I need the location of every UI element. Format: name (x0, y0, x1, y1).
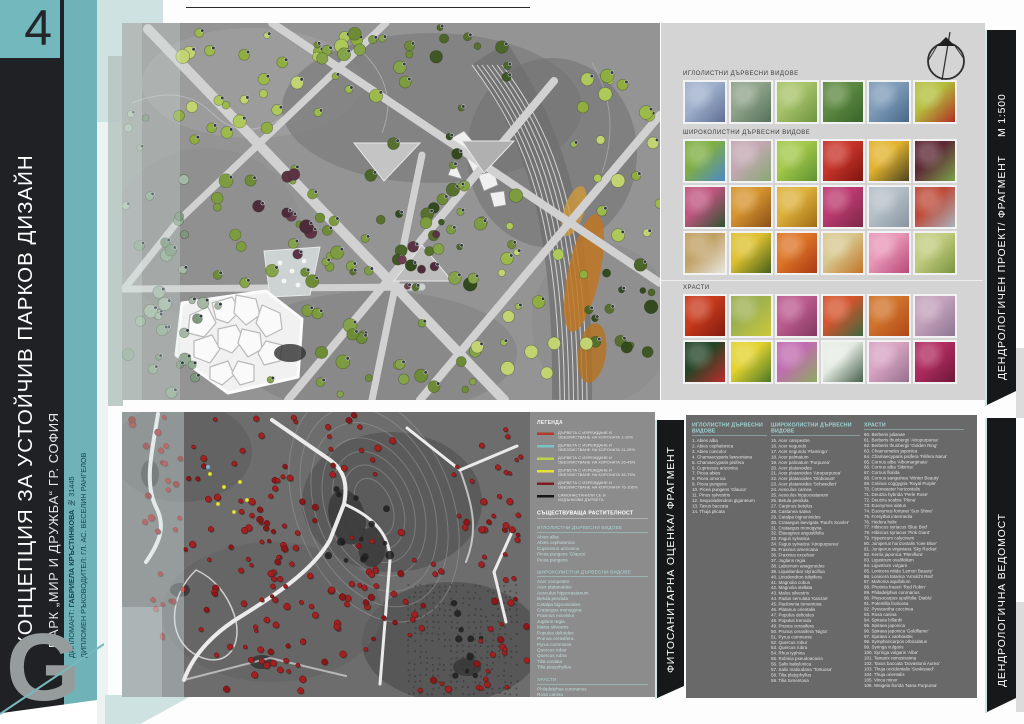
credit-line-1: ДИПЛОМАНТ: ГАБРИЕЛА КРЪСТИНКОВА № 31445 (66, 66, 78, 658)
band-dendrology-list: ДЕНДРОЛОГИЧНА ВЕДОМОСТ (985, 418, 1016, 713)
photo-section-title: ШИРОКОЛИСТНИ ДЪРВЕСНИ ВИДОВЕ (683, 130, 973, 136)
legend-item: ДЪРВЕТА С ИЗРЕЖДАНЕ ИОБЕЗЛИСТВАНЕ НА КОР… (537, 456, 648, 465)
photo-section-title: ХРАСТИ (683, 285, 973, 291)
legend-items: ДЪРВЕТА С ИЗРЕЖДАНЕ ИОБЕЗЛИСТВАНЕ НА КОР… (537, 431, 648, 503)
legend-label: ДЪРВЕТА С ИЗРЕЖДАНЕ ИОБЕЗЛИСТВАНЕ НА КОР… (558, 443, 635, 452)
plant-photo-thumbnail (729, 294, 773, 338)
decor-number-divider (60, 0, 64, 58)
dark-sculpture (274, 344, 306, 362)
credits: ДИПЛОМАНТ: ГАБРИЕЛА КРЪСТИНКОВА № 31445 … (66, 66, 94, 658)
sheet-number: 4 (0, 0, 60, 56)
band-label: ДЕНДРОЛОГИЧЕН ПРОЕКТ/ ФРАГМЕНТ (996, 155, 1008, 380)
species-column: ИГЛОЛИСТНИ ДЪРВЕСНИ ВИДОВЕ1. Abies alba2… (692, 422, 767, 688)
band-scale: М 1:500 (996, 94, 1008, 138)
species-column: ШИРОКОЛИСТНИ ДЪРВЕСНИ ВИДОВЕ15. Acer cam… (771, 422, 860, 688)
sheet-number-box: 4 (0, 0, 60, 58)
plant-photo-thumbnail (867, 231, 911, 275)
photo-section-title: ИГЛОЛИСТНИ ДЪРВЕСНИ ВИДОВЕ (683, 71, 973, 77)
plant-photo-thumbnail (821, 294, 865, 338)
decor-top-rule (186, 7, 530, 8)
plant-photo-thumbnail (821, 80, 865, 124)
plant-photo-thumbnail (913, 185, 957, 229)
band-dendrology-project: ДЕНДРОЛОГИЧЕН ПРОЕКТ/ ФРАГМЕНТМ 1:500 (985, 30, 1016, 406)
legend-label: ДЪРВЕТА С ИЗРЕЖДАНЕ ИОБЕЗЛИСТВАНЕ НА КОР… (558, 468, 635, 477)
legend-item: САМОНАСТАНИЛИ СЕ ИИЗДЪНКОВИ ДЪРВЕТА (537, 493, 648, 502)
species-item: 30. Crataegus laevigata 'Paul's Scarlet' (771, 520, 860, 525)
plant-photo-thumbnail (683, 294, 727, 338)
decor-teal-wedge (105, 695, 193, 724)
legend-swatch (537, 433, 554, 436)
plant-photo-thumbnail (913, 80, 957, 124)
decor-edge-tab (1016, 348, 1024, 418)
legend-swatch (537, 483, 554, 486)
poster-subtitle: ПАРК „МИР И ДРУЖБА“ ГР. СОФИЯ (46, 56, 64, 648)
species-list-panel: ИГЛОЛИСТНИ ДЪРВЕСНИ ВИДОВЕ1. Abies alba2… (686, 415, 977, 698)
plant-photo-thumbnail (683, 340, 727, 384)
plant-photo-thumbnail (683, 185, 727, 229)
plant-photo-thumbnail (821, 231, 865, 275)
plant-photo-thumbnail (821, 185, 865, 229)
vegetation-group-title: ХРАСТИ (537, 677, 648, 685)
plant-photo-thumbnail (775, 340, 819, 384)
plant-photo-thumbnail (729, 139, 773, 183)
studio-logo: G (0, 618, 104, 724)
vegetation-item: Tilia platyphyllus (537, 665, 648, 671)
plant-photo-thumbnail (729, 231, 773, 275)
plant-photo-thumbnail (913, 231, 957, 275)
legend-item: ДЪРВЕТА С ИЗРЕЖДАНЕ ИОБЕЗЛИСТВАНЕ НА КОР… (537, 481, 648, 490)
species-column-title: ХРАСТИ (864, 422, 964, 430)
phytosanitary-map (122, 412, 530, 697)
plant-photo-thumbnail (775, 294, 819, 338)
credit-line-2: ДИПЛОМЕН РЪКОВОДИТЕЛ: ГЛ. АС. ВЕСЕЛИН РА… (78, 66, 90, 658)
decor-sage-strip (108, 56, 123, 406)
decor-edge-tab (1016, 602, 1024, 712)
species-columns: ИГЛОЛИСТНИ ДЪРВЕСНИ ВИДОВЕ1. Abies alba2… (686, 415, 973, 695)
legend-swatch (537, 458, 554, 461)
band-label: ДЕНДРОЛОГИЧНА ВЕДОМОСТ (996, 418, 1008, 713)
plant-photo-thumbnail (867, 80, 911, 124)
legend-title: ЛЕГЕНДА (537, 420, 648, 426)
photo-grid (683, 139, 965, 277)
legend-item: ДЪРВЕТА С ИЗРЕЖДАНЕ ИОБЕЗЛИСТВАНЕ НА КОР… (537, 443, 648, 452)
plant-photo-panel: ИГЛОЛИСТНИ ДЪРВЕСНИ ВИДОВЕШИРОКОЛИСТНИ Д… (660, 23, 985, 400)
existing-vegetation-groups: ИГЛОЛИСТНИ ДЪРВЕСНИ ВИДОВЕAbies albaAbie… (537, 525, 648, 697)
plant-photo-thumbnail (729, 340, 773, 384)
plant-photo-thumbnail (729, 80, 773, 124)
legend-panel: ЛЕГЕНДА ДЪРВЕТА С ИЗРЕЖДАНЕ ИОБЕЗЛИСТВАН… (530, 412, 655, 697)
species-column-title: ШИРОКОЛИСТНИ ДЪРВЕСНИ ВИДОВЕ (771, 422, 860, 436)
band-phytosanitary: ФИТОСАНИТАРНА ОЦЕНКА/ ФРАГМЕНТ (655, 420, 684, 699)
plant-photo-thumbnail (867, 294, 911, 338)
legend-label: САМОНАСТАНИЛИ СЕ ИИЗДЪНКОВИ ДЪРВЕТА (558, 493, 606, 502)
species-item: 14. Thuja plicata (692, 509, 767, 514)
legend-swatch (537, 495, 554, 498)
vegetation-group-title: ШИРОКОЛИСТНИ ДЪРВЕСНИ ВИДОВЕ (537, 570, 648, 578)
vegetation-item: Picea pungens (537, 557, 648, 563)
plant-photo-thumbnail (821, 340, 865, 384)
plant-photo-thumbnail (867, 340, 911, 384)
vegetation-item: Rosa canina (537, 692, 648, 697)
legend-item: ДЪРВЕТА С ИЗРЕЖДАНЕ ИОБЕЗЛИСТВАНЕ НА КОР… (537, 431, 648, 440)
species-item: 106. Weigela florida 'Nana Purpurea' (864, 683, 964, 688)
section-divider (661, 280, 983, 281)
legend-item: ДЪРВЕТА С ИЗРЕЖДАНЕ ИОБЕЗЛИСТВАНЕ НА КОР… (537, 468, 648, 477)
species-column: ХРАСТИ60. Berberis julianae61. Berberis … (864, 422, 964, 688)
poster: 4 КОНЦЕПЦИЯ ЗА УСТОЙЧИВ ПАРКОВ ДИЗАЙН ПА… (0, 0, 1024, 724)
plant-photo-thumbnail (775, 231, 819, 275)
species-item: 59. Tilia tomentosa (771, 678, 860, 683)
photo-grid (683, 80, 965, 126)
vegetation-group-title: ИГЛОЛИСТНИ ДЪРВЕСНИ ВИДОВЕ (537, 525, 648, 533)
legend-swatch (537, 445, 554, 448)
existing-vegetation-title: СЪЩЕСТВУВАЩА РАСТИТЕЛНОСТ (537, 510, 648, 519)
plant-photo-thumbnail (775, 80, 819, 124)
dendrology-plan-map (122, 23, 660, 400)
poster-title: КОНЦЕПЦИЯ ЗА УСТОЙЧИВ ПАРКОВ ДИЗАЙН (14, 56, 44, 648)
legend-swatch (537, 470, 554, 473)
plant-photo-thumbnail (913, 340, 957, 384)
legend-label: ДЪРВЕТА С ИЗРЕЖДАНЕ ИОБЕЗЛИСТВАНЕ НА КОР… (558, 456, 635, 465)
photo-sections: ИГЛОЛИСТНИ ДЪРВЕСНИ ВИДОВЕШИРОКОЛИСТНИ Д… (683, 67, 973, 386)
legend-label: ДЪРВЕТА С ИЗРЕЖДАНЕ ИОБЕЗЛИСТВАНЕ НА КОР… (558, 431, 633, 440)
plant-photo-thumbnail (729, 185, 773, 229)
logo-diagonal-line (0, 618, 104, 724)
plant-photo-thumbnail (867, 139, 911, 183)
plant-photo-thumbnail (683, 80, 727, 124)
plant-photo-thumbnail (913, 139, 957, 183)
plant-photo-thumbnail (775, 185, 819, 229)
plant-photo-thumbnail (913, 294, 957, 338)
plant-photo-thumbnail (775, 139, 819, 183)
legend-label: ДЪРВЕТА С ИЗРЕЖДАНЕ ИОБЕЗЛИСТВАНЕ НА КОР… (558, 481, 638, 490)
plant-photo-thumbnail (821, 139, 865, 183)
plant-photo-thumbnail (683, 231, 727, 275)
band-label: ФИТОСАНИТАРНА ОЦЕНКА/ ФРАГМЕНТ (665, 420, 677, 699)
plant-photo-thumbnail (867, 185, 911, 229)
photo-grid (683, 294, 965, 386)
plant-photo-thumbnail (683, 139, 727, 183)
species-column-title: ИГЛОЛИСТНИ ДЪРВЕСНИ ВИДОВЕ (692, 422, 767, 436)
